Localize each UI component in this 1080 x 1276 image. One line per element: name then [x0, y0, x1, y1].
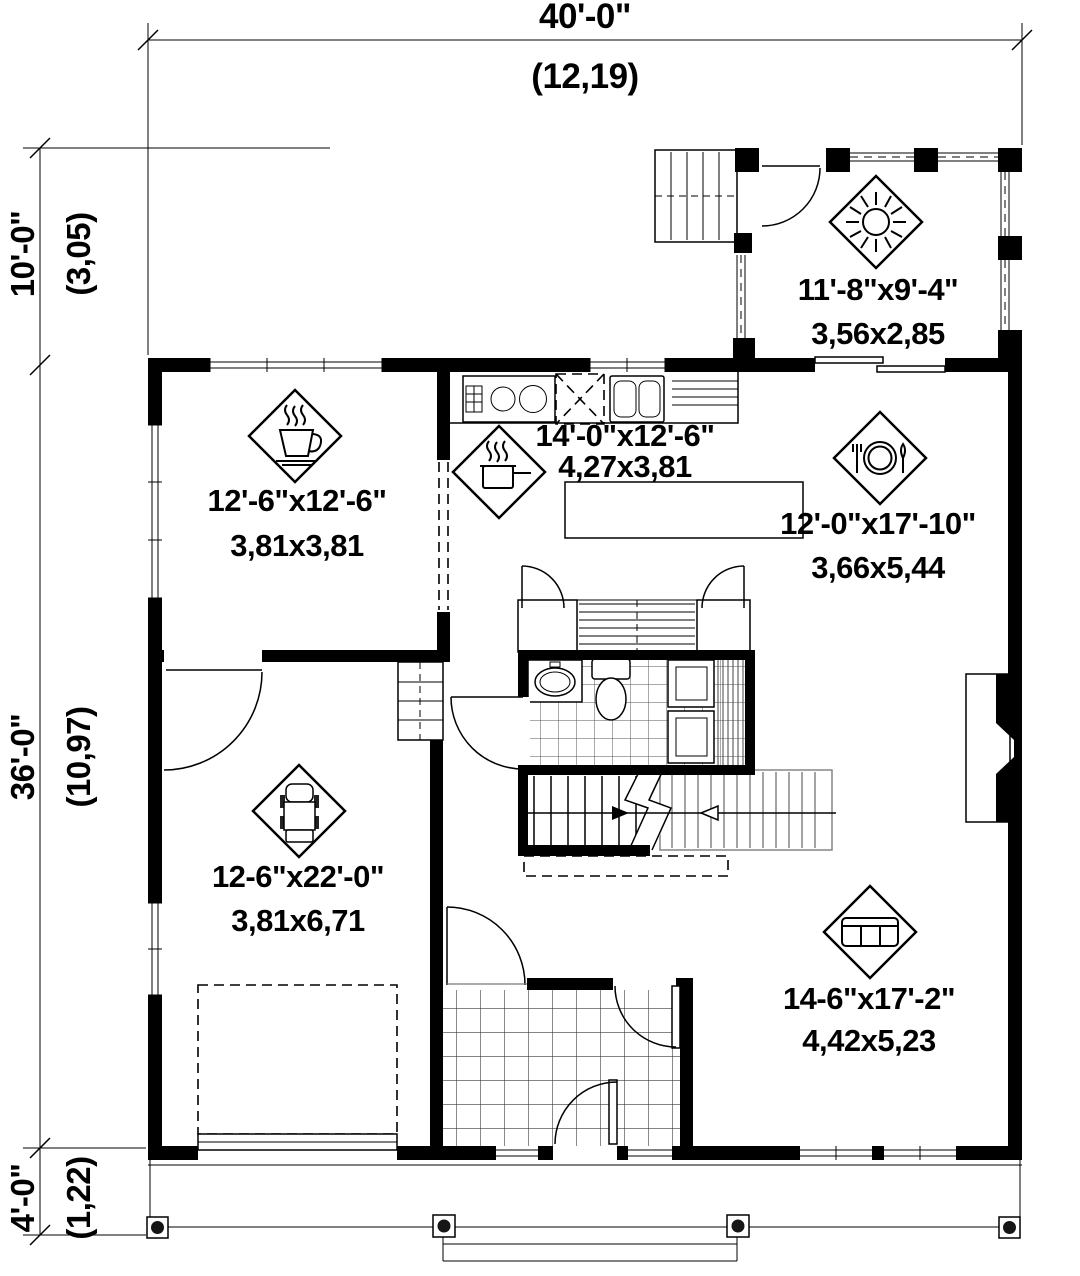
dim-left-upper-metric: (3,05): [60, 212, 97, 295]
garage-size-imperial: 12-6"x22'-0": [212, 859, 384, 894]
front-door-opening: [553, 1146, 617, 1160]
cased-opening-dashed: [439, 462, 448, 610]
stair-overhead-dashed: [524, 856, 728, 876]
living-size-imperial: 14-6"x17'-2": [783, 981, 955, 1016]
garage-left-window: [148, 903, 162, 995]
dim-left-upper-imperial: 10'-0": [4, 211, 41, 298]
garage-overhead-door: [198, 1134, 397, 1160]
entry-sidelite-right: [628, 1146, 672, 1160]
bathroom-door: [451, 697, 523, 769]
garage-side-door: [164, 670, 262, 770]
living-window-1: [800, 1146, 872, 1160]
bathroom-vanity-sink: [528, 660, 582, 702]
breakfast-left-window: [148, 425, 162, 598]
shower: [668, 660, 714, 763]
deck-stairs: [655, 150, 737, 242]
dim-left-lower-metric: (1,22): [60, 1156, 97, 1239]
dim-top-metric: (12,19): [531, 57, 638, 96]
front-porch: [147, 1160, 1022, 1261]
sun-icon: [830, 176, 922, 268]
stove: [463, 376, 555, 422]
coffee-cup-icon: [249, 390, 341, 482]
stair-arrow-up: [612, 806, 629, 820]
patio-slider-door: [815, 352, 945, 375]
living-size-metric: 4,42x5,23: [802, 1023, 936, 1058]
breakfast-size-metric: 3,81x3,81: [230, 528, 364, 563]
deck-size-imperial: 11'-8"x9'-4": [798, 272, 959, 307]
dim-left: 10'-0" (3,05) 36'-0" (10,97) 4'-0" (1,22…: [4, 138, 330, 1245]
stair-treads-open: [660, 770, 832, 850]
fireplace: [966, 674, 1022, 822]
porch-steps: [443, 1227, 737, 1261]
stair-arrow-down: [701, 806, 718, 820]
dim-top-imperial: 40'-0": [539, 0, 631, 36]
foyer-tile-floor: [443, 990, 681, 1146]
floor-plan-page: 11'-8"x9'-4" 3,56x2,85 12'-6"x12'-6" 3,8…: [0, 0, 1080, 1276]
hall-door: [447, 907, 527, 985]
garage-size-metric: 3,81x6,71: [231, 903, 365, 938]
deck-size-metric: 3,56x2,85: [811, 316, 945, 351]
dining-size-imperial: 12'-0"x17'-10": [780, 506, 976, 541]
garage-items: [198, 662, 443, 1134]
dim-left-middle-imperial: 36'-0": [4, 714, 41, 801]
car-icon: [253, 765, 345, 857]
refrigerator: [556, 374, 604, 424]
dim-left-middle-metric: (10,97): [60, 706, 97, 807]
breakfast-size-imperial: 12'-6"x12'-6": [208, 483, 387, 518]
deck-gate-door: [762, 166, 820, 226]
kitchen-island: [565, 482, 803, 538]
main-staircase: [518, 768, 836, 876]
kitchen-sink: [610, 376, 664, 422]
dining-size-metric: 3,66x5,44: [811, 550, 946, 585]
sofa-icon: [824, 886, 916, 978]
dim-left-lower-imperial: 4'-0": [4, 1164, 41, 1233]
cooking-pot-icon: [453, 426, 545, 518]
kitchen-size-metric: 4,27x3,81: [558, 449, 692, 484]
living-window-2: [884, 1146, 956, 1160]
entry-sidelite-left: [496, 1146, 538, 1160]
floor-plan-svg: 11'-8"x9'-4" 3,56x2,85 12'-6"x12'-6" 3,8…: [0, 0, 1080, 1276]
kitchen-window: [590, 358, 665, 372]
counter-shelf-lines: [672, 381, 738, 405]
garage-door-swing-dashed: [198, 985, 397, 1134]
center-closets-stairs: [518, 566, 750, 652]
plate-cutlery-icon: [834, 412, 926, 504]
garage-entry-steps: [398, 662, 443, 740]
kitchen-size-imperial: 14'-0"x12'-6": [536, 418, 715, 453]
breakfast-top-window: [210, 358, 382, 372]
